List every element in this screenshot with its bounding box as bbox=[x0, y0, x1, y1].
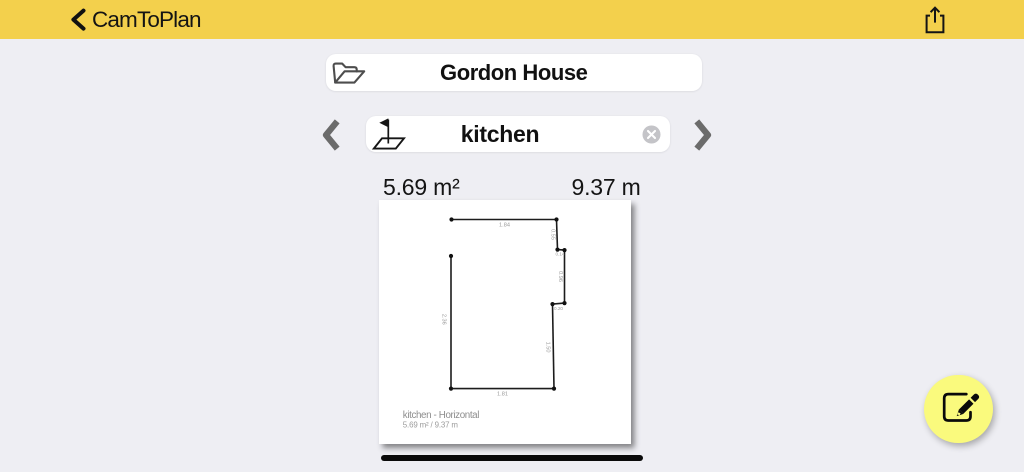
svg-text:5.69 m² / 9.37 m: 5.69 m² / 9.37 m bbox=[402, 420, 458, 429]
svg-text:1.81: 1.81 bbox=[497, 391, 508, 397]
svg-text:2.36: 2.36 bbox=[440, 313, 446, 324]
svg-text:0.14: 0.14 bbox=[555, 251, 564, 256]
svg-text:0.55: 0.55 bbox=[549, 229, 555, 240]
svg-text:0.20: 0.20 bbox=[554, 306, 563, 311]
svg-text:0.96: 0.96 bbox=[556, 271, 562, 282]
svg-text:1.50: 1.50 bbox=[544, 341, 550, 352]
svg-text:1.84: 1.84 bbox=[499, 222, 510, 228]
svg-text:kitchen - Horizontal: kitchen - Horizontal bbox=[402, 409, 478, 420]
